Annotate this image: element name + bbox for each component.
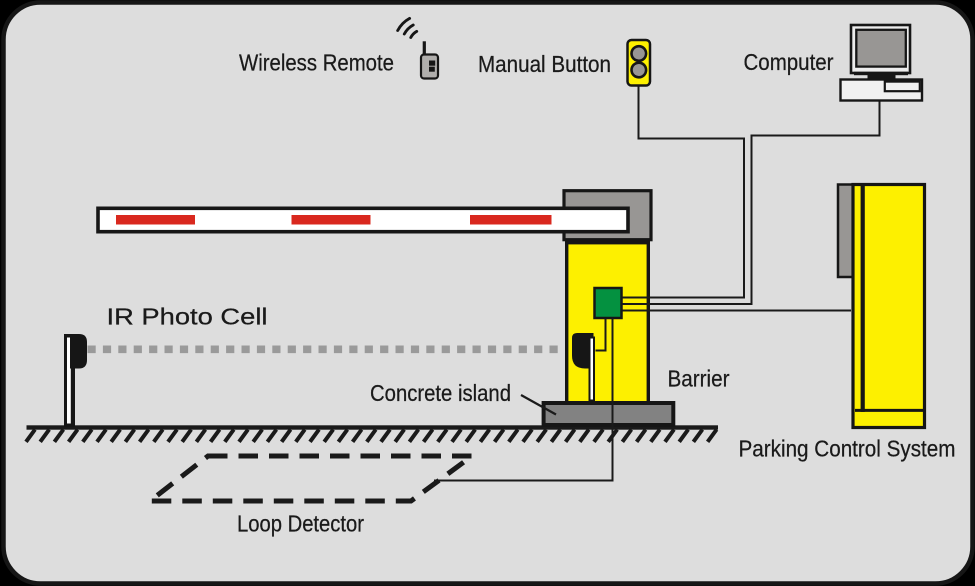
svg-text:Barrier: Barrier <box>668 366 730 392</box>
svg-text:IR Photo Cell: IR Photo Cell <box>107 304 268 330</box>
svg-text:Loop Detector: Loop Detector <box>237 511 364 537</box>
svg-text:Manual Button: Manual Button <box>478 51 611 77</box>
svg-text:Parking Control System: Parking Control System <box>739 436 956 462</box>
svg-text:Computer: Computer <box>744 49 834 75</box>
svg-text:Wireless Remote: Wireless Remote <box>239 50 394 76</box>
svg-text:Concrete island: Concrete island <box>370 380 511 406</box>
